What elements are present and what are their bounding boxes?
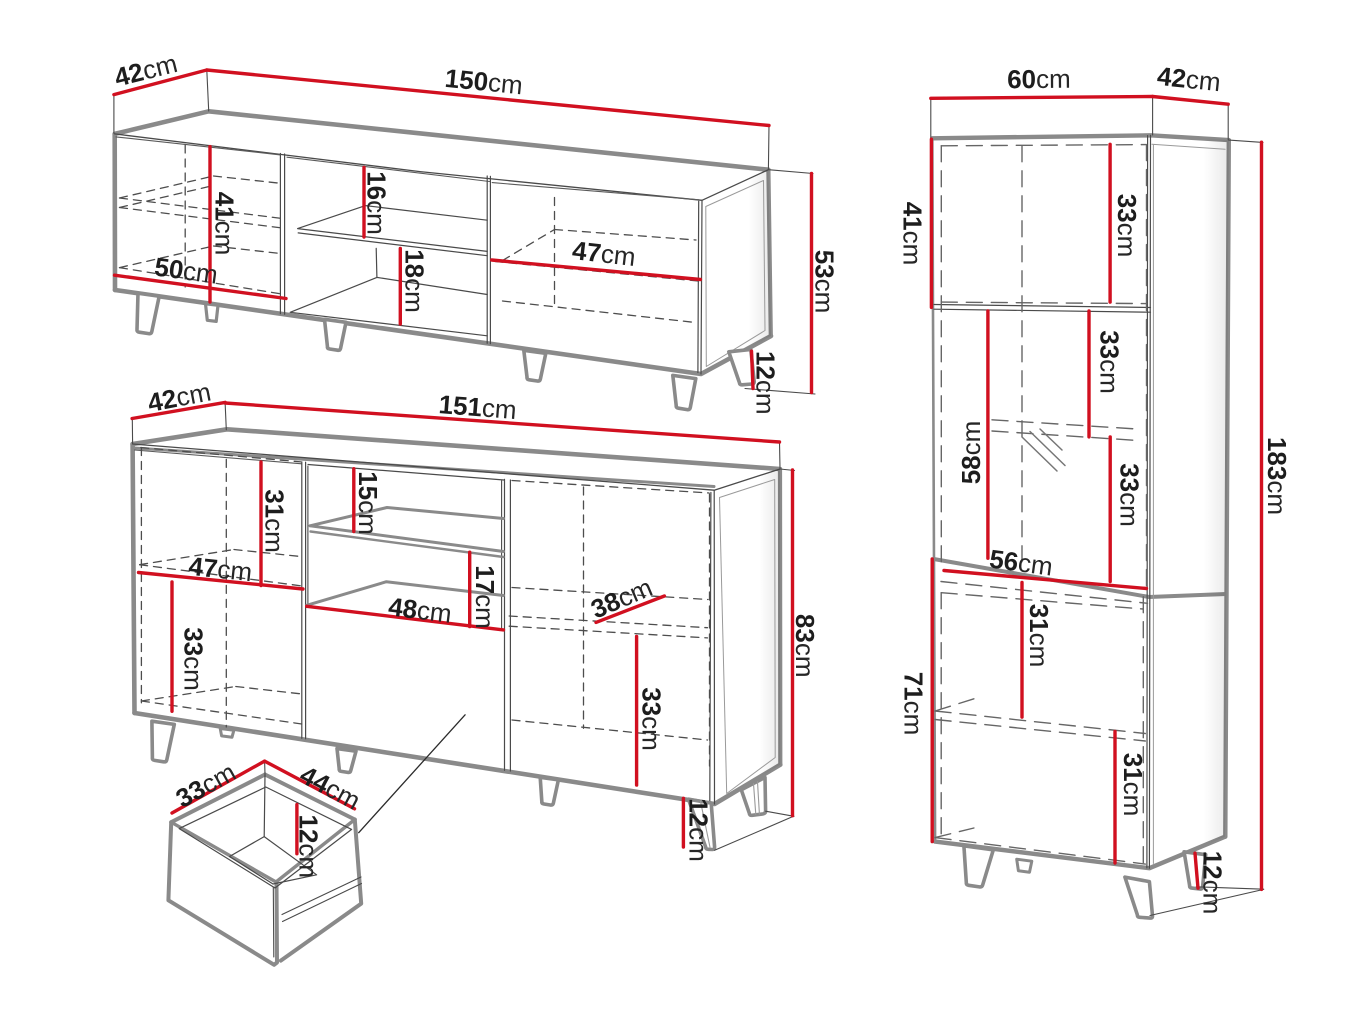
svg-text:31cm: 31cm: [1118, 753, 1148, 817]
svg-text:12cm: 12cm: [751, 351, 781, 415]
svg-text:33cm: 33cm: [1095, 330, 1125, 394]
svg-text:41cm: 41cm: [898, 202, 928, 266]
svg-text:33cm: 33cm: [179, 627, 209, 691]
svg-text:33cm: 33cm: [1112, 194, 1142, 258]
svg-text:58cm: 58cm: [956, 421, 986, 485]
svg-text:12cm: 12cm: [1198, 851, 1228, 915]
svg-text:31cm: 31cm: [260, 489, 290, 553]
svg-text:31cm: 31cm: [1024, 604, 1054, 668]
svg-text:41cm: 41cm: [210, 192, 240, 256]
svg-text:60cm: 60cm: [1007, 64, 1071, 95]
svg-text:15cm: 15cm: [353, 471, 383, 535]
svg-text:53cm: 53cm: [810, 250, 840, 314]
svg-text:71cm: 71cm: [899, 672, 929, 736]
svg-text:83cm: 83cm: [790, 614, 820, 678]
svg-text:12cm: 12cm: [684, 798, 714, 862]
svg-text:16cm: 16cm: [362, 171, 392, 235]
svg-text:151cm: 151cm: [438, 389, 518, 425]
svg-text:183cm: 183cm: [1262, 437, 1292, 515]
svg-text:18cm: 18cm: [400, 249, 430, 313]
svg-text:12cm: 12cm: [294, 815, 324, 879]
svg-text:17cm: 17cm: [470, 565, 500, 629]
svg-text:33cm: 33cm: [636, 687, 666, 751]
svg-text:33cm: 33cm: [1115, 463, 1145, 527]
